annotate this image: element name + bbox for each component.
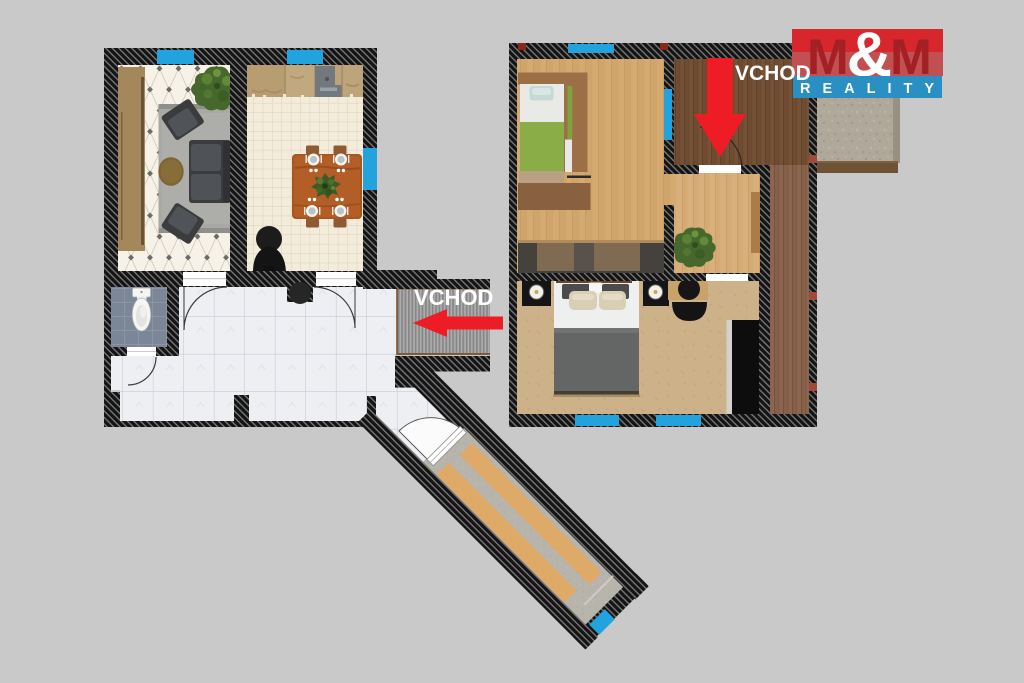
svg-text:VCHOD: VCHOD: [735, 62, 811, 85]
svg-text:REALITY: REALITY: [800, 81, 946, 97]
svg-text:VCHOD: VCHOD: [414, 285, 493, 310]
